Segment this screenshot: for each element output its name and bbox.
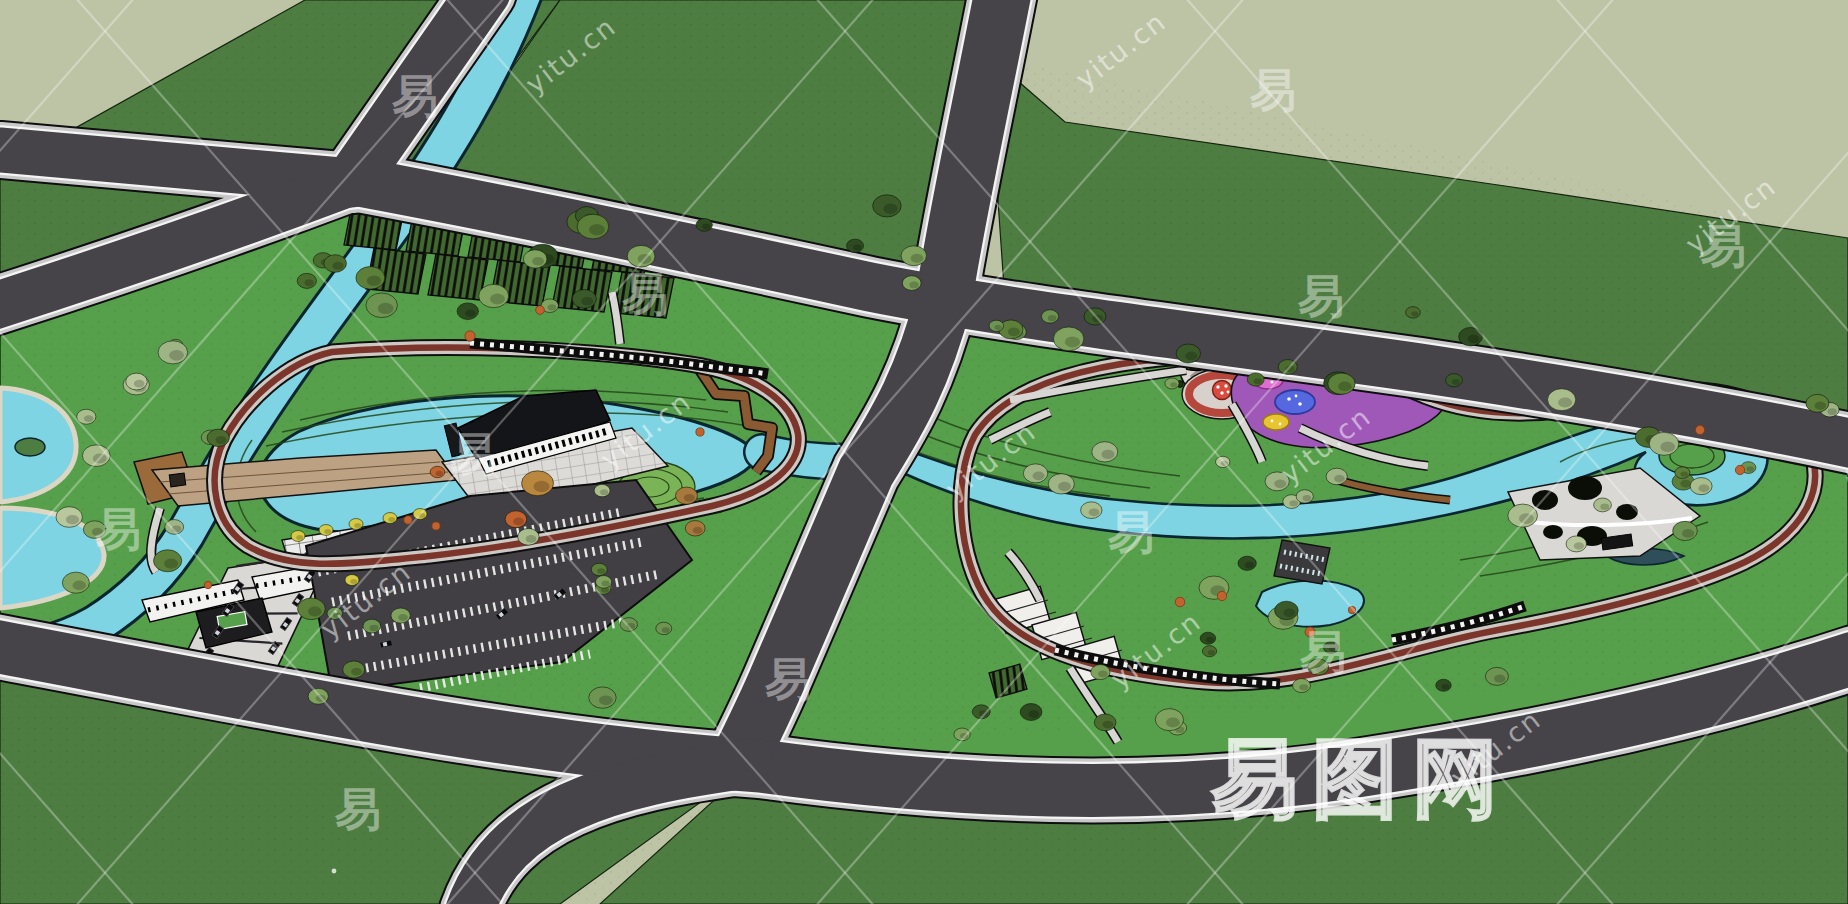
shrub-orange [1695, 425, 1704, 434]
tree [1690, 478, 1712, 495]
tree [1165, 378, 1179, 389]
tree [479, 284, 509, 307]
tree [1048, 474, 1074, 494]
tree [158, 341, 188, 364]
tree [1446, 374, 1463, 387]
tree [457, 303, 478, 320]
tree [366, 293, 398, 318]
watermark-glyph: 易 [449, 427, 496, 481]
tree [901, 246, 926, 266]
tree [343, 661, 365, 678]
deck-pavilion [169, 473, 186, 487]
tree [596, 576, 612, 589]
tree [1176, 344, 1200, 363]
watermark-glyph: 易 [94, 502, 141, 556]
tree [154, 550, 182, 572]
watermark-glyph: 易 [334, 782, 381, 836]
tree [1275, 601, 1299, 619]
tree [847, 239, 864, 252]
tree [1406, 307, 1421, 318]
tree [345, 575, 359, 586]
mushroom-blue [1275, 390, 1315, 414]
tree [685, 521, 705, 536]
watermark-glyph: 易 [1844, 437, 1848, 491]
viewport: 易图网 易易易易易易易易易易易易yitu.cnyitu.cnyitu.cnyit… [0, 0, 1848, 904]
shrub-orange [1175, 597, 1185, 607]
watermark-glyph: 易 [1107, 505, 1154, 559]
shrub-orange [404, 516, 412, 524]
watermark-glyph: 易 [391, 69, 438, 123]
tree [349, 519, 363, 530]
tree [523, 250, 547, 268]
tree [518, 528, 539, 545]
tree [577, 214, 609, 239]
tree [1436, 679, 1451, 691]
tree [391, 608, 410, 623]
tree [1328, 373, 1355, 394]
tree [1094, 714, 1116, 731]
watermark-glyph: 易 [764, 652, 811, 706]
tree [1081, 502, 1102, 519]
tree [1594, 498, 1612, 512]
tree [1293, 679, 1311, 693]
tree [1200, 632, 1216, 644]
tree [207, 429, 229, 446]
tree [56, 507, 82, 528]
tree [1673, 521, 1698, 540]
watermark-glyph: 易 [1297, 269, 1344, 323]
tree [1020, 704, 1042, 721]
tree [1326, 468, 1347, 485]
tree [505, 511, 527, 528]
tree [1155, 709, 1183, 731]
shrub-orange [536, 306, 545, 315]
tree [62, 572, 89, 593]
watermark-glyph: 易 [621, 267, 668, 321]
weir [1274, 540, 1330, 584]
tree [1238, 556, 1256, 570]
tree [383, 513, 397, 524]
mushroom-yellow [1263, 414, 1289, 430]
tree [591, 563, 607, 575]
tree [572, 289, 596, 308]
tree [319, 525, 333, 536]
tree [1053, 327, 1083, 351]
watermark-dot [332, 869, 337, 874]
tree [1649, 432, 1679, 455]
shrub-orange [1217, 591, 1226, 600]
tree [297, 273, 316, 288]
tree [291, 531, 305, 542]
road-asphalt [0, 150, 352, 181]
pond-island [15, 438, 45, 456]
tree [126, 373, 148, 390]
watermark-glyph: 易 [1299, 625, 1346, 679]
tree [1485, 667, 1508, 685]
tree [1247, 373, 1264, 386]
tree [696, 218, 712, 231]
tree [1548, 389, 1576, 411]
tree [675, 487, 697, 504]
tree [989, 320, 1003, 331]
tree [363, 619, 381, 633]
shrub-orange [432, 522, 440, 530]
shrub-orange [1735, 465, 1744, 474]
shrub-orange [204, 581, 211, 588]
watermark-glyph: 易 [1249, 63, 1296, 117]
tree [324, 255, 347, 273]
mushroom-canopy [1213, 381, 1232, 400]
tree [589, 687, 616, 708]
tree [594, 484, 610, 496]
tree [1041, 310, 1058, 323]
shrub-orange [465, 331, 475, 341]
shrub-orange [696, 428, 704, 436]
tree [430, 466, 445, 477]
tree [1023, 464, 1047, 483]
tree [1202, 646, 1216, 657]
tree [1566, 536, 1586, 552]
tree [1092, 442, 1118, 462]
tree [1675, 467, 1690, 479]
tree [902, 276, 921, 291]
tree [1806, 394, 1829, 412]
tree [522, 471, 554, 496]
park-master-plan-render: 易图网 易易易易易易易易易易易易yitu.cnyitu.cnyitu.cnyit… [0, 0, 1848, 904]
tree [356, 267, 385, 290]
tree [656, 622, 672, 634]
tree [873, 195, 901, 217]
tree [1296, 490, 1313, 503]
